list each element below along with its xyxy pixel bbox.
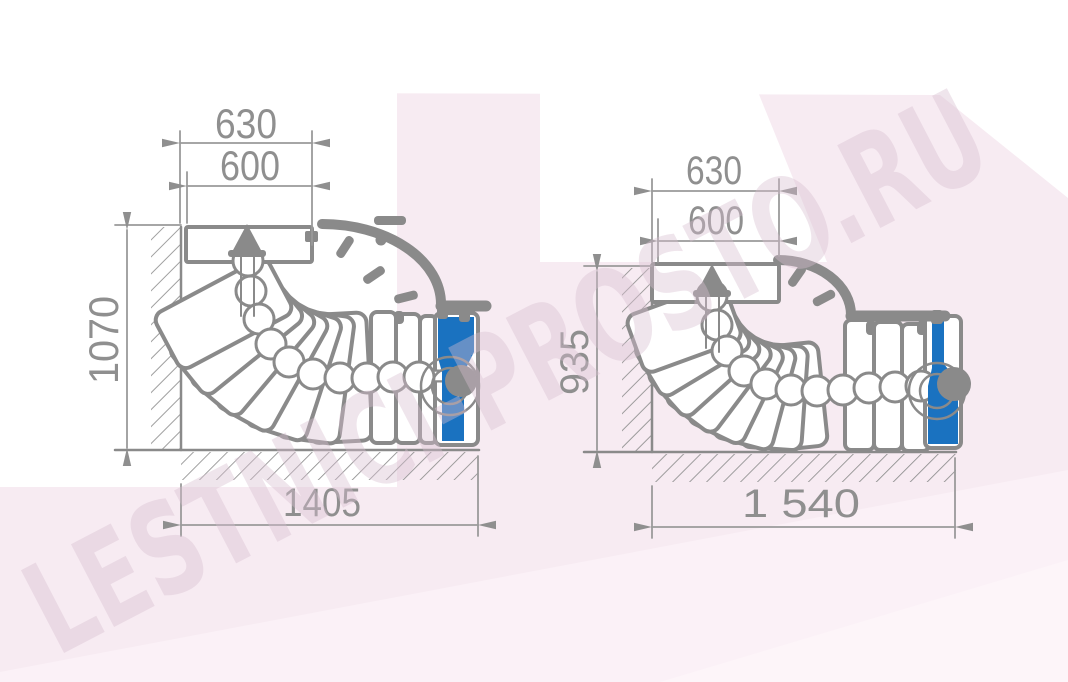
- floor-hatch: [652, 454, 956, 482]
- baluster-tab: [394, 311, 404, 324]
- baluster-tab: [917, 321, 927, 335]
- handrail-end-ball: [937, 367, 971, 401]
- upper-rail-stub: [374, 216, 406, 225]
- baluster-tab: [866, 321, 876, 335]
- dim-label-top-inner-left: 600: [220, 142, 280, 189]
- staircase-drawing-canvas: 630 600 1070 1405: [0, 0, 1068, 682]
- rail-dot: [376, 235, 387, 246]
- arrow-base-bar: [228, 250, 266, 257]
- dim-label-top-outer-left: 630: [215, 100, 277, 147]
- dim-label-height-left: 1070: [80, 296, 127, 384]
- dim-label-length-right: 1 540: [742, 482, 860, 526]
